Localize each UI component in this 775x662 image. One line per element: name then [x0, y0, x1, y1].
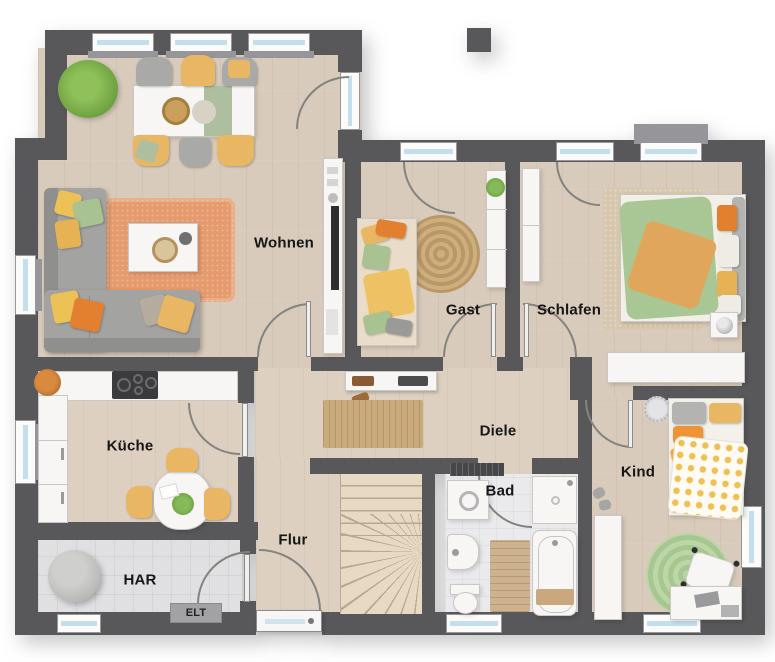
pillow-yellow	[709, 403, 741, 423]
wardrobe-bench	[345, 371, 437, 391]
shoes-on-shelf	[352, 376, 374, 386]
dining-chair-gray	[222, 57, 257, 86]
bathtub-caddy	[536, 589, 574, 605]
dresser-schlafen	[607, 352, 745, 383]
window-wohnen-west	[15, 255, 36, 315]
kids-bed	[668, 398, 744, 516]
wall-kueche-har	[15, 522, 258, 540]
har-door-leaf	[244, 554, 250, 602]
window-gast	[400, 142, 457, 161]
lamp	[716, 317, 733, 334]
kitchen-chair	[126, 486, 152, 518]
window-wohnen-2	[170, 33, 232, 52]
dining-chair-yellow	[181, 55, 215, 86]
wall-stair-right	[421, 474, 435, 614]
fruit-bowl	[34, 369, 61, 396]
window-kueche-west	[15, 420, 36, 484]
printer	[721, 605, 739, 617]
cooktop	[112, 371, 158, 399]
washing-machine	[447, 480, 489, 520]
chimney	[467, 28, 491, 52]
window-schlafen-1	[556, 142, 614, 161]
label-kueche: Küche	[107, 438, 154, 455]
wardrobe-schlafen	[522, 168, 540, 282]
label-diele: Diele	[480, 423, 517, 440]
pillow-gray	[385, 317, 413, 337]
window-wohnen-3	[248, 33, 310, 52]
dining-chair-yellow	[133, 135, 169, 166]
window-bad-south	[446, 614, 502, 633]
tv	[331, 206, 339, 290]
kitchen-chair	[166, 448, 198, 472]
radiator	[450, 463, 504, 476]
window-schlafen-2	[640, 142, 702, 161]
wall-stub-tv	[311, 357, 362, 371]
faucet	[452, 549, 459, 556]
roller-shutter-box	[634, 124, 708, 144]
dining-chair-yellow	[217, 135, 254, 166]
door-handle	[308, 618, 314, 624]
bag-on-shelf	[398, 376, 428, 386]
pillow-yellow	[156, 294, 196, 334]
staircase	[340, 474, 422, 614]
wall-gast-schlafen	[505, 162, 520, 357]
water-tank	[48, 550, 100, 602]
wall-between-doors	[497, 357, 523, 371]
kind-door-leaf	[628, 400, 633, 448]
nightstand	[710, 312, 738, 338]
schlafen-door-leaf	[524, 303, 529, 357]
desk	[670, 586, 742, 620]
pillow-white	[719, 235, 739, 267]
kueche-door-leaf	[242, 403, 248, 457]
double-bed	[620, 194, 746, 322]
window-har-south	[57, 614, 101, 633]
shower-drain	[551, 496, 560, 505]
label-flur: Flur	[278, 532, 307, 549]
daybed	[357, 218, 417, 346]
table-flowers	[192, 100, 216, 124]
coffee-table	[128, 223, 198, 272]
table-centerpiece	[162, 97, 190, 125]
wall-kueche-east-lower	[238, 457, 254, 522]
faucet	[552, 540, 558, 546]
label-har: HAR	[123, 572, 156, 589]
wall-stair-top	[310, 458, 435, 474]
toilet	[453, 592, 478, 614]
pillow-orange	[717, 205, 737, 231]
wall-wohnen-east-upper	[338, 30, 362, 72]
bathroom-sink	[447, 534, 479, 570]
bathtub	[532, 530, 577, 616]
vase	[179, 232, 192, 245]
bath-mat	[490, 540, 530, 612]
shelf-plant	[486, 178, 505, 197]
label-schlafen: Schlafen	[537, 302, 601, 319]
entrance-door	[256, 610, 322, 632]
wall-left-lower	[15, 148, 38, 635]
window-kind-east	[741, 506, 762, 568]
pillow-green	[361, 243, 390, 270]
laptop	[694, 591, 720, 608]
window-sill	[36, 259, 42, 311]
pillow-orange	[69, 297, 105, 333]
flower-mirror	[644, 396, 670, 422]
label-gast: Gast	[446, 302, 480, 319]
wall-gast-diele	[362, 357, 443, 371]
wall-junction	[570, 357, 592, 400]
wall-bad-kind	[578, 458, 592, 614]
pillow-gray	[672, 402, 706, 424]
wohnen-diele-door-leaf	[306, 301, 311, 357]
window-wohnen-1	[92, 33, 154, 52]
label-elt: ELT	[186, 607, 207, 619]
dotted-blanket	[667, 435, 749, 520]
kitchen-tall-units	[38, 395, 68, 523]
window-sill	[244, 51, 314, 58]
plant	[58, 60, 118, 118]
wall-kueche-east-upper	[238, 371, 254, 403]
shower	[532, 476, 577, 524]
diele-rug	[323, 400, 423, 448]
floor-plan: Wohnen Gast Schlafen Küche Diele Kind Ba…	[0, 0, 775, 662]
label-kind: Kind	[621, 464, 655, 481]
wardrobe-kind	[594, 515, 622, 620]
label-bad: Bad	[486, 483, 515, 500]
pillow-yellow	[54, 218, 82, 249]
tray	[152, 237, 178, 263]
label-wohnen: Wohnen	[254, 235, 314, 252]
kitchen-chair	[204, 488, 230, 520]
sofa-main	[44, 290, 200, 352]
dining-table	[133, 85, 255, 137]
shower-head	[567, 480, 573, 486]
pillow-yellow	[717, 271, 737, 297]
kitchen-table	[153, 470, 211, 530]
dining-chair-gray	[136, 57, 172, 86]
wall-bad-top-right	[532, 458, 578, 474]
dining-chair-gray	[179, 138, 211, 167]
gast-door-leaf	[491, 303, 496, 357]
